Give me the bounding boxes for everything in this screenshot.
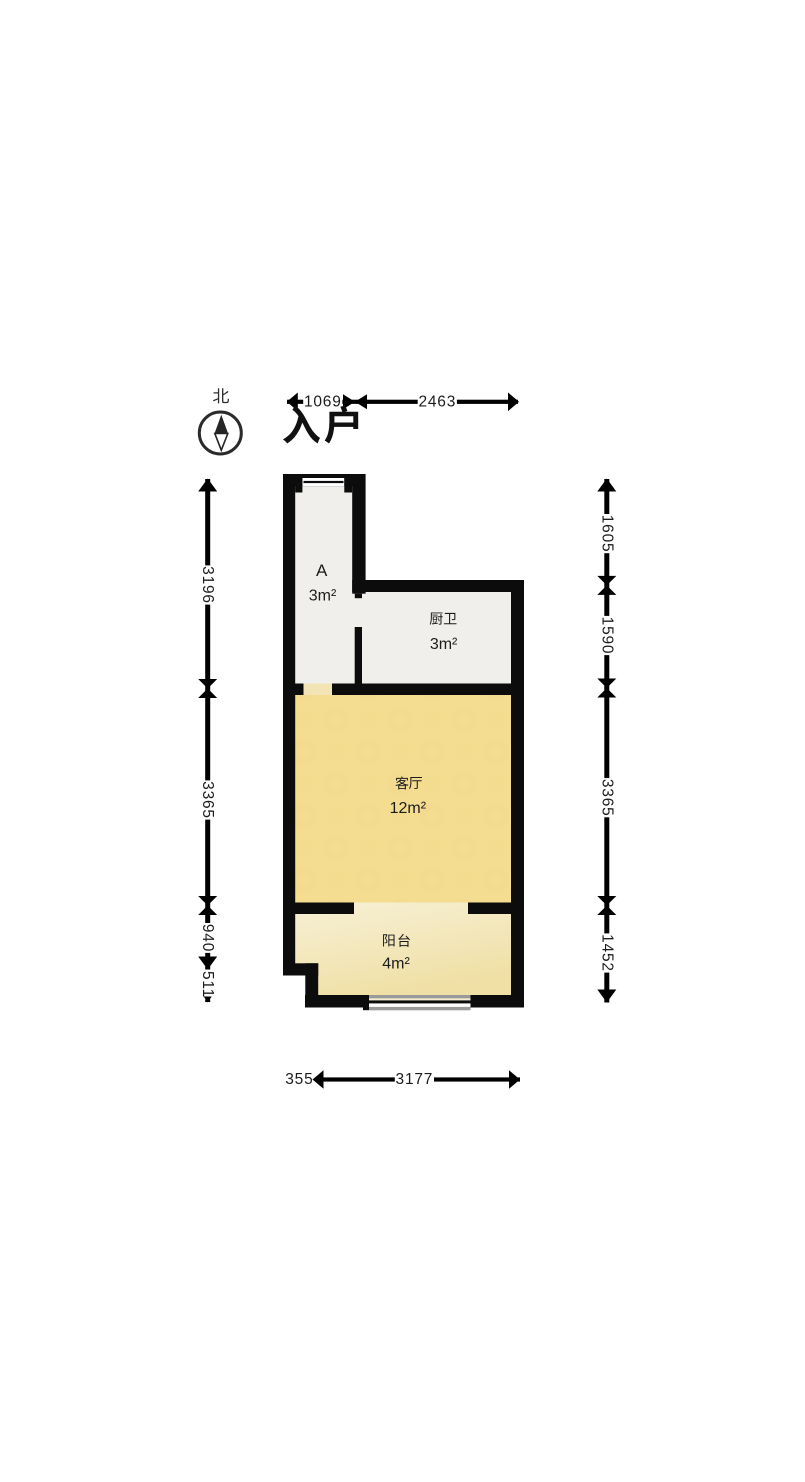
svg-text:355: 355 (285, 1071, 313, 1088)
svg-text:12m²: 12m² (390, 800, 427, 817)
svg-text:940: 940 (199, 924, 216, 952)
svg-text:1452: 1452 (598, 934, 615, 972)
svg-text:3177: 3177 (396, 1071, 434, 1088)
svg-text:4m²: 4m² (382, 956, 410, 973)
svg-text:2463: 2463 (418, 393, 456, 410)
svg-text:3365: 3365 (598, 779, 615, 817)
svg-text:3365: 3365 (199, 781, 216, 819)
svg-text:A: A (316, 561, 328, 580)
svg-text:3m²: 3m² (430, 636, 458, 653)
svg-text:1590: 1590 (598, 617, 615, 655)
svg-text:511: 511 (199, 971, 216, 998)
svg-text:3m²: 3m² (309, 588, 337, 605)
svg-text:1069: 1069 (304, 393, 342, 410)
svg-text:1605: 1605 (598, 515, 615, 553)
svg-text:3196: 3196 (199, 566, 216, 604)
